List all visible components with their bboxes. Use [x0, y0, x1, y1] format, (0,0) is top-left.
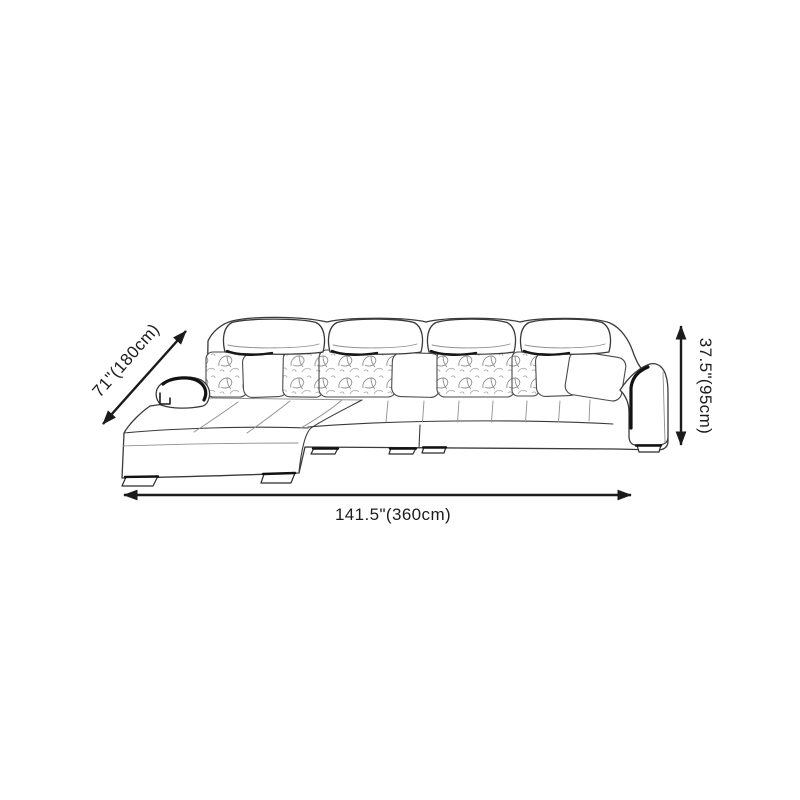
- floral-pillow: [512, 352, 539, 396]
- floral-pillow: [437, 350, 515, 397]
- back-pillows: [206, 350, 627, 402]
- height-dimension-label: 37.5"(95cm): [696, 338, 715, 434]
- headrest-cushions: [223, 319, 610, 355]
- product-dimension-diagram: 71"(180cm) 37.5"(95cm) 141.5"(360cm): [0, 0, 800, 800]
- width-dimension: 141.5"(360cm): [124, 495, 631, 524]
- floral-pillow: [319, 350, 396, 397]
- sofa-line-drawing: [122, 317, 668, 486]
- plain-pillow: [242, 352, 288, 398]
- depth-dimension-label: 71"(180cm): [89, 320, 164, 401]
- plain-pillow: [564, 350, 627, 402]
- height-dimension: 37.5"(95cm): [681, 326, 715, 445]
- diagram-canvas: 71"(180cm) 37.5"(95cm) 141.5"(360cm): [0, 0, 800, 800]
- plain-pillow: [391, 352, 440, 397]
- width-dimension-label: 141.5"(360cm): [335, 505, 451, 524]
- floral-pillow: [283, 352, 324, 398]
- floral-pillow: [206, 352, 247, 397]
- chaise-armrest: [156, 377, 209, 408]
